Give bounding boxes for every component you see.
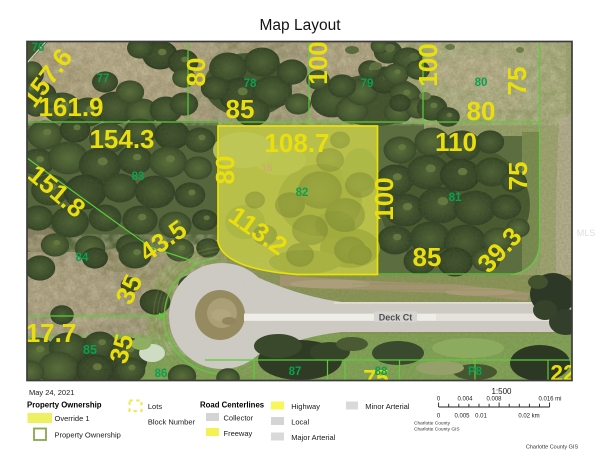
svg-text:Local: Local xyxy=(291,417,309,426)
svg-text:81: 81 xyxy=(449,192,462,204)
svg-text:100: 100 xyxy=(369,177,399,220)
svg-text:MLS: MLS xyxy=(577,228,596,238)
svg-text:Charlotte County GIS: Charlotte County GIS xyxy=(526,445,579,451)
svg-text:87: 87 xyxy=(289,366,302,378)
svg-text:Freeway: Freeway xyxy=(224,429,253,438)
svg-text:0.008: 0.008 xyxy=(486,397,502,403)
svg-text:80: 80 xyxy=(210,156,240,185)
svg-text:Major Arterial: Major Arterial xyxy=(291,433,336,442)
svg-text:100: 100 xyxy=(413,43,443,86)
svg-text:0.004: 0.004 xyxy=(457,397,473,403)
svg-text:16: 16 xyxy=(261,163,273,174)
svg-text:Charlotte County: Charlotte County xyxy=(414,421,451,427)
svg-text:1:500: 1:500 xyxy=(491,387,512,396)
svg-text:75: 75 xyxy=(502,67,532,96)
svg-text:0.01: 0.01 xyxy=(475,414,487,420)
svg-text:Property Ownership: Property Ownership xyxy=(55,431,121,440)
svg-text:77: 77 xyxy=(97,73,110,85)
svg-text:May 24, 2021: May 24, 2021 xyxy=(29,388,74,397)
svg-text:0.016 mi: 0.016 mi xyxy=(538,397,561,403)
svg-text:84: 84 xyxy=(76,252,89,264)
svg-text:154.3: 154.3 xyxy=(89,124,154,154)
svg-text:Highway: Highway xyxy=(291,402,320,411)
svg-text:Road Centerlines: Road Centerlines xyxy=(200,401,265,410)
svg-text:86: 86 xyxy=(155,368,168,380)
svg-text:Property Ownership: Property Ownership xyxy=(27,401,102,410)
svg-text:108.7: 108.7 xyxy=(264,128,329,158)
svg-text:17.7: 17.7 xyxy=(26,318,77,348)
svg-text:P8: P8 xyxy=(468,366,483,378)
svg-text:Deck Ct: Deck Ct xyxy=(379,313,413,323)
svg-text:75: 75 xyxy=(503,162,533,191)
svg-text:82: 82 xyxy=(296,187,309,199)
svg-text:88: 88 xyxy=(375,366,388,378)
svg-text:Charlotte County GIS: Charlotte County GIS xyxy=(414,427,460,433)
svg-text:0.02 km: 0.02 km xyxy=(518,414,539,420)
svg-text:100: 100 xyxy=(303,41,333,84)
svg-text:Lots: Lots xyxy=(148,402,162,411)
svg-text:85: 85 xyxy=(83,343,97,357)
svg-text:78: 78 xyxy=(244,78,257,90)
svg-text:85: 85 xyxy=(226,94,255,124)
svg-text:Minor Arterial: Minor Arterial xyxy=(365,402,410,411)
svg-text:80: 80 xyxy=(181,58,211,87)
svg-text:76: 76 xyxy=(32,42,45,54)
svg-text:110: 110 xyxy=(435,127,477,157)
svg-text:Block Number: Block Number xyxy=(148,417,196,426)
svg-text:79: 79 xyxy=(361,78,374,90)
svg-text:80: 80 xyxy=(467,96,496,126)
svg-text:Override 1: Override 1 xyxy=(55,414,90,423)
svg-text:85: 85 xyxy=(413,242,442,272)
svg-text:Collector: Collector xyxy=(224,414,254,423)
svg-text:83: 83 xyxy=(132,171,145,183)
svg-text:80: 80 xyxy=(475,77,488,89)
svg-text:Map Layout: Map Layout xyxy=(260,17,342,34)
svg-text:0.005: 0.005 xyxy=(454,414,470,420)
